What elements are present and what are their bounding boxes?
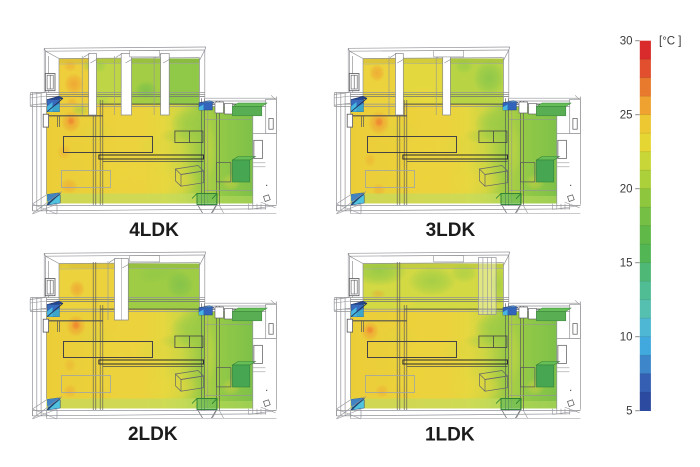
svg-text:1LDK: 1LDK [425,425,475,446]
svg-text:3LDK: 3LDK [426,220,476,241]
svg-text:25: 25 [620,110,633,122]
svg-text:4LDK: 4LDK [129,220,179,241]
svg-text:[°C ]: [°C ] [659,36,682,48]
svg-text:2LDK: 2LDK [128,424,178,445]
svg-text:20: 20 [620,184,633,196]
svg-text:5: 5 [626,406,632,418]
svg-text:15: 15 [620,258,633,270]
svg-text:10: 10 [620,332,633,344]
svg-text:30: 30 [620,36,633,48]
